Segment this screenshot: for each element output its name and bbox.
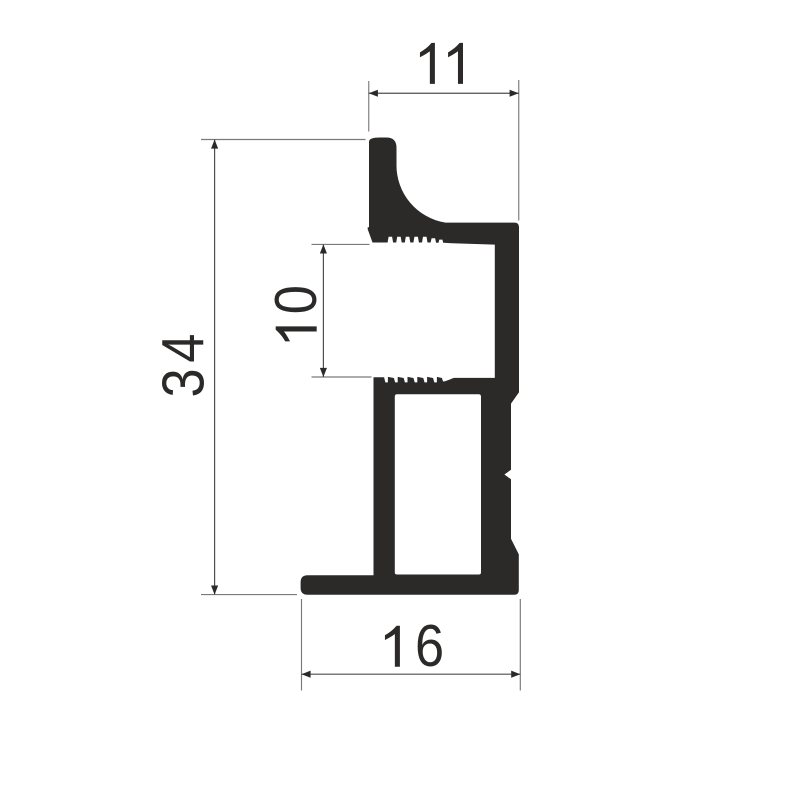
svg-text:6: 6 — [415, 612, 444, 679]
svg-text:4: 4 — [149, 334, 216, 363]
svg-text:0: 0 — [262, 285, 329, 314]
svg-text:3: 3 — [149, 368, 216, 397]
